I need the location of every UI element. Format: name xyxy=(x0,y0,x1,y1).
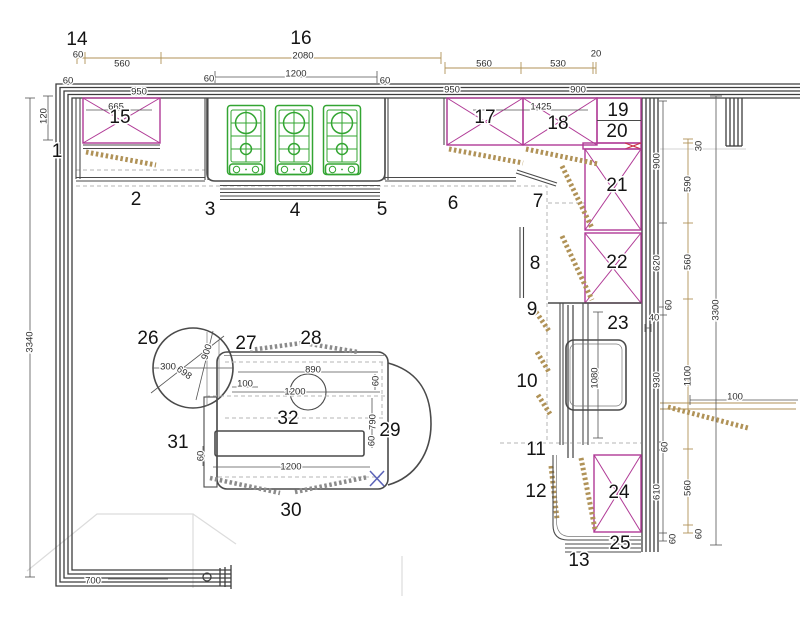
callout-number: 20 xyxy=(606,121,627,142)
dimension-text: 2080 xyxy=(292,51,313,62)
dimension-text: 698 xyxy=(174,364,193,382)
dimension-text-layer: 6056020801200606060950665560530209509001… xyxy=(25,49,743,587)
gas-hob-3 xyxy=(324,106,361,175)
dimension-text: 60 xyxy=(371,376,382,387)
callout-number: 1 xyxy=(52,141,63,162)
callout-number: 14 xyxy=(66,29,88,50)
callout-number: 13 xyxy=(568,550,589,571)
dimension-text: 60 xyxy=(367,436,378,447)
dimension-text: 1100 xyxy=(683,366,694,386)
gas-hob-1 xyxy=(228,106,265,175)
dimension-text: 560 xyxy=(476,59,492,70)
callout-number: 4 xyxy=(290,200,301,221)
callout-number: 27 xyxy=(235,333,256,354)
callout-number: 24 xyxy=(608,482,630,503)
blue-x-marker xyxy=(370,471,384,486)
dimension-text: 620 xyxy=(652,255,663,271)
dimension-text: 30 xyxy=(694,141,705,152)
callout-number: 5 xyxy=(377,199,388,220)
callout-number: 31 xyxy=(167,432,188,453)
callout-number: 7 xyxy=(533,191,544,212)
dimension-text: 1080 xyxy=(590,367,601,388)
dimension-text: 560 xyxy=(683,254,694,270)
dimension-text: 3340 xyxy=(25,331,36,352)
callout-number: 17 xyxy=(474,107,495,128)
callout-number: 21 xyxy=(606,175,627,196)
hob-worktop xyxy=(207,98,385,200)
kitchen-floor-plan-canvas: 6056020801200606060950665560530209509001… xyxy=(0,0,800,633)
dimension-text: 530 xyxy=(550,59,566,70)
callout-number: 19 xyxy=(607,100,628,121)
dimension-text: 890 xyxy=(305,365,321,376)
callout-number: 10 xyxy=(516,371,537,392)
dimension-text: 560 xyxy=(683,480,694,496)
island-body xyxy=(217,352,388,489)
dimension-text: 3300 xyxy=(711,299,722,320)
callout-number: 15 xyxy=(109,107,130,128)
callout-number: 28 xyxy=(300,328,321,349)
dimension-chains xyxy=(25,52,798,579)
callout-number: 26 xyxy=(137,328,158,349)
callout-number: 11 xyxy=(526,439,546,460)
dimension-text: 60 xyxy=(204,74,215,85)
callout-number: 32 xyxy=(277,408,298,429)
callout-number: 2 xyxy=(131,189,142,210)
dimension-text: 1425 xyxy=(530,102,551,113)
dimension-text: 20 xyxy=(591,49,602,60)
dimension-text: 100 xyxy=(237,379,253,390)
callout-number: 22 xyxy=(606,252,627,273)
right-wall-door-leaf xyxy=(668,407,748,428)
callout-number: 25 xyxy=(609,533,630,554)
dimension-text: 60 xyxy=(63,76,74,87)
dimension-text: 100 xyxy=(727,392,743,403)
dimension-text: 60 xyxy=(380,76,391,87)
callout-number: 16 xyxy=(290,28,311,49)
dimension-text: 1200 xyxy=(280,462,301,473)
dimension-text: 60 xyxy=(660,442,671,453)
dimension-text: 560 xyxy=(114,59,130,70)
callout-number: 30 xyxy=(280,500,301,521)
dimension-text: 60 xyxy=(664,300,675,311)
callout-number: 12 xyxy=(525,481,546,502)
dimension-text: 790 xyxy=(368,414,379,430)
callout-number: 23 xyxy=(607,313,628,334)
dimension-text: 950 xyxy=(444,85,460,96)
callout-number: 8 xyxy=(530,253,541,274)
callout-number: 6 xyxy=(448,193,459,214)
dimension-text: 900 xyxy=(570,85,586,96)
dimension-text: 900 xyxy=(652,153,663,169)
dimension-text: 950 xyxy=(131,87,147,98)
dimension-text: 120 xyxy=(39,108,50,124)
dimension-text: 610 xyxy=(652,484,663,500)
dimension-text: 590 xyxy=(683,176,694,192)
dimension-text: 900 xyxy=(199,343,214,361)
dimension-text: 40 xyxy=(649,313,660,324)
dimension-text: 300 xyxy=(160,362,176,373)
gas-hob-2 xyxy=(276,106,313,175)
dimension-text: 930 xyxy=(652,372,663,388)
island-slot xyxy=(215,431,364,456)
floor-plan-page: 6056020801200606060950665560530209509001… xyxy=(0,0,800,633)
dimension-text: 60 xyxy=(668,534,679,545)
dimension-text: 60 xyxy=(73,50,84,61)
dimension-text: 60 xyxy=(694,529,705,540)
callout-number: 18 xyxy=(547,113,568,134)
dashed-counter-edge xyxy=(76,170,641,443)
dimension-text: 1200 xyxy=(285,69,306,80)
dimension-text: 1200 xyxy=(284,387,305,398)
callout-number: 9 xyxy=(527,299,538,320)
door-hatch-strips xyxy=(86,149,796,529)
callout-number: 3 xyxy=(205,199,216,220)
dimension-text: 60 xyxy=(196,451,207,462)
dimension-text: 700 xyxy=(85,576,101,587)
callout-number: 29 xyxy=(379,420,400,441)
